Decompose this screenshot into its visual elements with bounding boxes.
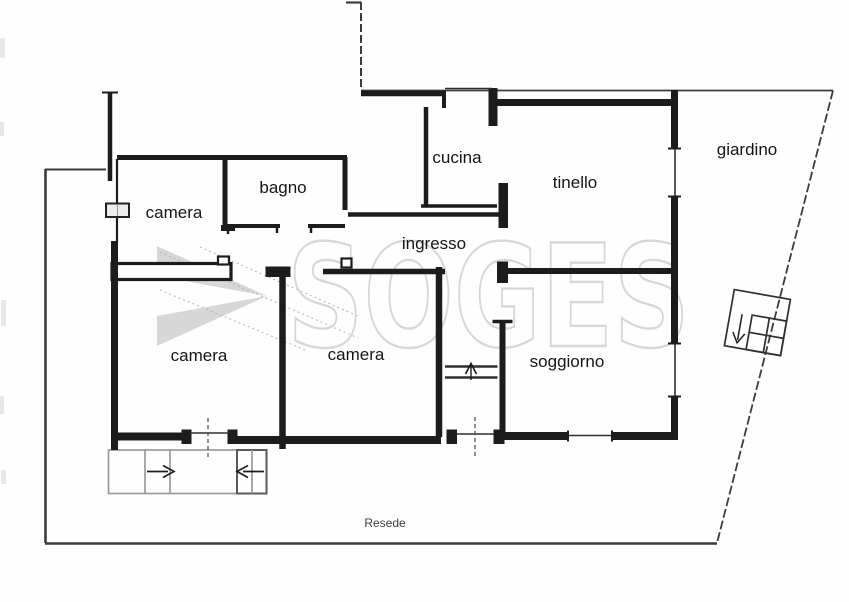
wall-soggiorno-top-jamb (497, 262, 508, 284)
room-label-camera-top: camera (146, 203, 203, 222)
room-label-camera-left: camera (171, 346, 228, 365)
entry-door-jamb-left (182, 430, 192, 445)
wall-corridor-pilaster (342, 259, 352, 268)
scan-smudge (0, 38, 5, 58)
wall-entry-right-jamb (489, 88, 498, 126)
room-label-giardino: giardino (717, 140, 778, 159)
room-label-tinello: tinello (553, 173, 597, 192)
scan-smudge (0, 396, 4, 414)
room-label-soggiorno: soggiorno (530, 352, 605, 371)
floor-plan-svg: SOGES (0, 0, 849, 602)
scanned-floorplan-document: SOGES (0, 0, 849, 602)
room-label-ingresso: ingresso (402, 234, 466, 253)
entry-door-jamb-right (228, 430, 238, 445)
wall-camera-band (112, 264, 231, 280)
area-label-resede: Resede (364, 516, 406, 530)
room-label-camera-mid: camera (328, 345, 385, 364)
scan-smudge (0, 122, 4, 136)
room-label-bagno: bagno (259, 178, 306, 197)
wall-cucina-tinello-divider (499, 183, 509, 228)
scan-smudge (1, 300, 6, 326)
soggiorno-door-jamb-right (494, 430, 505, 445)
room-label-cucina: cucina (432, 148, 482, 167)
wall-band-pilaster (218, 257, 229, 265)
wall-corridor-cap (266, 267, 291, 278)
soggiorno-door-jamb-left (447, 430, 458, 445)
scan-smudge (1, 470, 6, 484)
